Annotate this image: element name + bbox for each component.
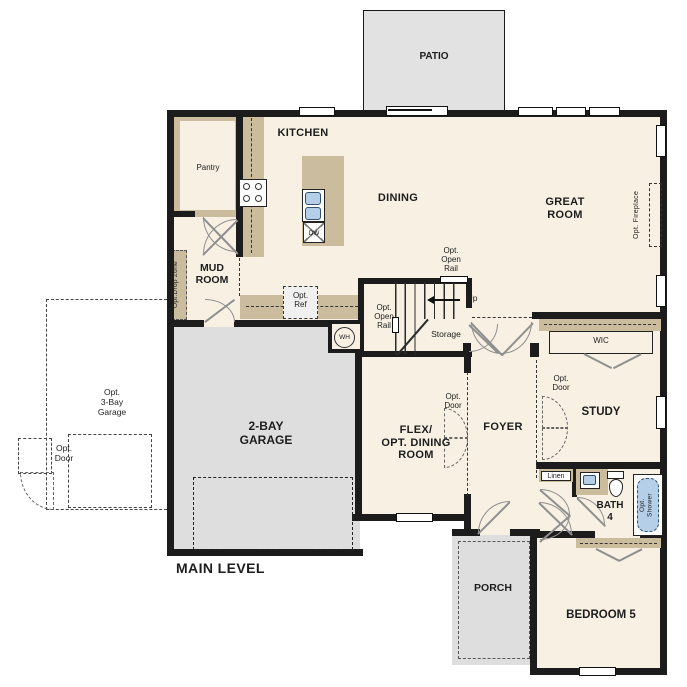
wic-label: WIC — [585, 336, 617, 345]
window — [656, 125, 666, 157]
opt-open-rail-upper-label: Opt. Open Rail — [432, 246, 470, 274]
open-rail-upper — [440, 276, 468, 283]
great-room-label: GREAT ROOM — [534, 196, 596, 221]
patio-label: PATIO — [404, 51, 464, 63]
storage-label: Storage — [424, 330, 468, 340]
burner-icon — [243, 183, 250, 190]
patio-slider-panel — [388, 109, 432, 111]
patio-slider-door — [386, 106, 448, 116]
patio-area — [363, 10, 505, 115]
window — [396, 513, 433, 522]
dining-label: DINING — [368, 192, 428, 205]
stove-icon — [239, 179, 267, 207]
linen-chip: Linen — [541, 471, 571, 481]
wic-shelf — [539, 319, 661, 331]
wall — [170, 211, 195, 217]
study-label: STUDY — [570, 406, 632, 419]
sink-basin-icon — [305, 207, 321, 220]
bedroom-floor — [536, 538, 665, 672]
opt-fireplace-box — [649, 183, 662, 247]
wall — [530, 531, 537, 675]
garage-door-outline — [193, 477, 353, 550]
wall — [167, 110, 174, 556]
window — [579, 667, 616, 676]
burner-icon — [255, 195, 262, 202]
opt-open-rail-lower-label: Opt. Open Rail — [366, 303, 402, 331]
window — [656, 396, 666, 429]
water-heater-icon: WH — [334, 327, 355, 348]
wall — [530, 343, 539, 357]
garage-door-threshold — [194, 551, 352, 553]
opt-fireplace-label: Opt. Fireplace — [633, 183, 646, 247]
pantry-label: Pantry — [184, 163, 232, 172]
porch-label: PORCH — [466, 582, 520, 594]
window — [589, 107, 620, 116]
burner-icon — [255, 183, 262, 190]
up-arrow-line — [434, 299, 460, 301]
opt-door-garage-label: Opt. Door — [48, 444, 80, 464]
window — [299, 107, 335, 116]
opt-door-study-label: Opt. Door — [544, 374, 578, 392]
up-label: Up — [463, 294, 481, 304]
opt-3bay-garage-label: Opt. 3-Bay Garage — [82, 388, 142, 417]
window — [556, 107, 586, 116]
bedroom-closet-dash — [580, 543, 657, 544]
burner-icon — [243, 195, 250, 202]
window — [518, 107, 553, 116]
dishwasher-icon: DW — [303, 222, 325, 243]
opt-side-door-stub — [18, 438, 52, 474]
wall — [452, 529, 480, 536]
opt-shower-label: Opt. Shower — [639, 481, 657, 529]
sink-basin-icon — [305, 192, 321, 205]
mud-room-label: MUD ROOM — [184, 262, 240, 286]
kitchen-label: KITCHEN — [272, 127, 334, 140]
window — [656, 275, 666, 307]
bath-label: BATH 4 — [592, 500, 628, 523]
wall — [328, 349, 360, 353]
floor-plan: Opt. 3-Bay Garage Opt. Door WH — [0, 0, 687, 687]
opt-3bay-garage-door-outline — [68, 434, 152, 508]
opt-door-flex-label: Opt. Door — [436, 392, 470, 410]
garage-label: 2-BAY GARAGE — [216, 420, 316, 448]
toilet-tank-icon — [607, 471, 624, 479]
bedroom-label: BEDROOM 5 — [548, 609, 654, 622]
foyer-right-dash — [536, 360, 537, 478]
wall — [532, 312, 667, 319]
wic-shelf-dash — [544, 324, 656, 325]
bath-sink-basin-icon — [583, 475, 596, 485]
opt-ref-label: Opt. Ref — [284, 291, 317, 309]
foyer-top-dash — [472, 317, 532, 318]
wall — [536, 462, 667, 469]
opt-side-door-swing — [20, 472, 54, 510]
plan-title: MAIN LEVEL — [176, 560, 306, 576]
porch-inner-dash — [458, 541, 530, 659]
up-arrow-head-icon — [427, 296, 434, 304]
flex-label: FLEX/ OPT. DINING ROOM — [370, 424, 462, 462]
foyer-label: FOYER — [475, 421, 531, 434]
